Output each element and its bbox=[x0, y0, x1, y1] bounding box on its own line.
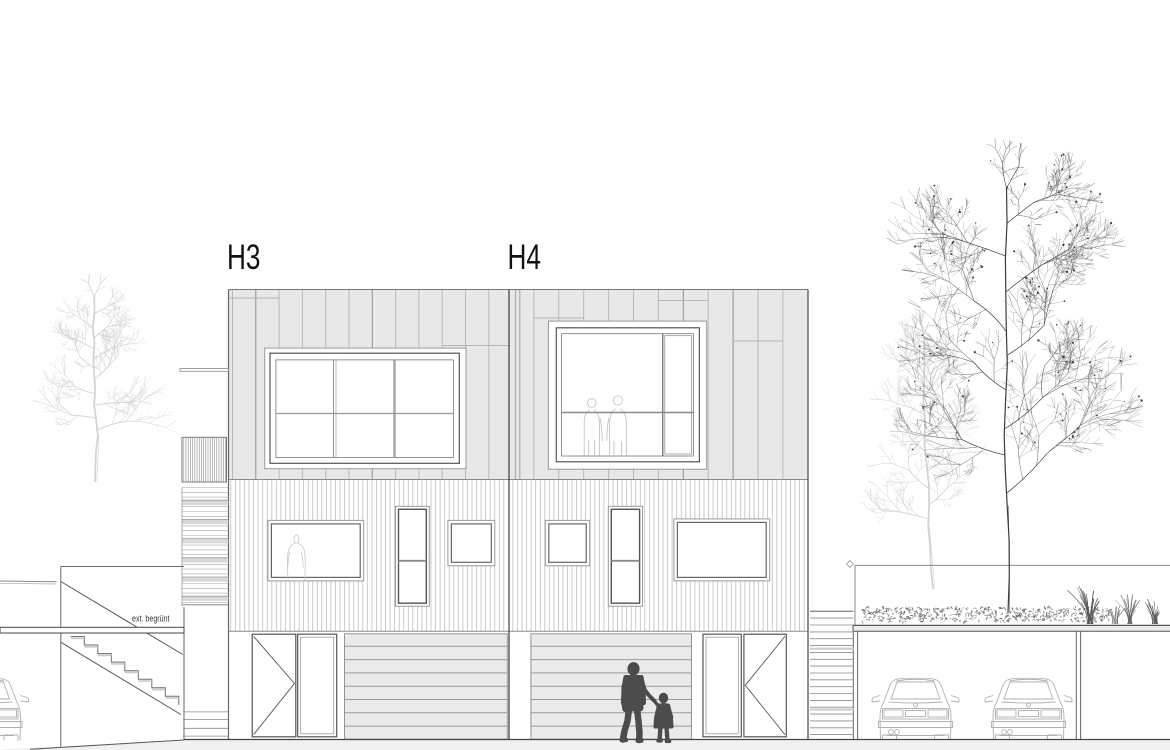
svg-text:ext. begrünt: ext. begrünt bbox=[132, 613, 170, 624]
svg-text:H3: H3 bbox=[227, 238, 261, 277]
svg-text:H4: H4 bbox=[508, 238, 542, 277]
